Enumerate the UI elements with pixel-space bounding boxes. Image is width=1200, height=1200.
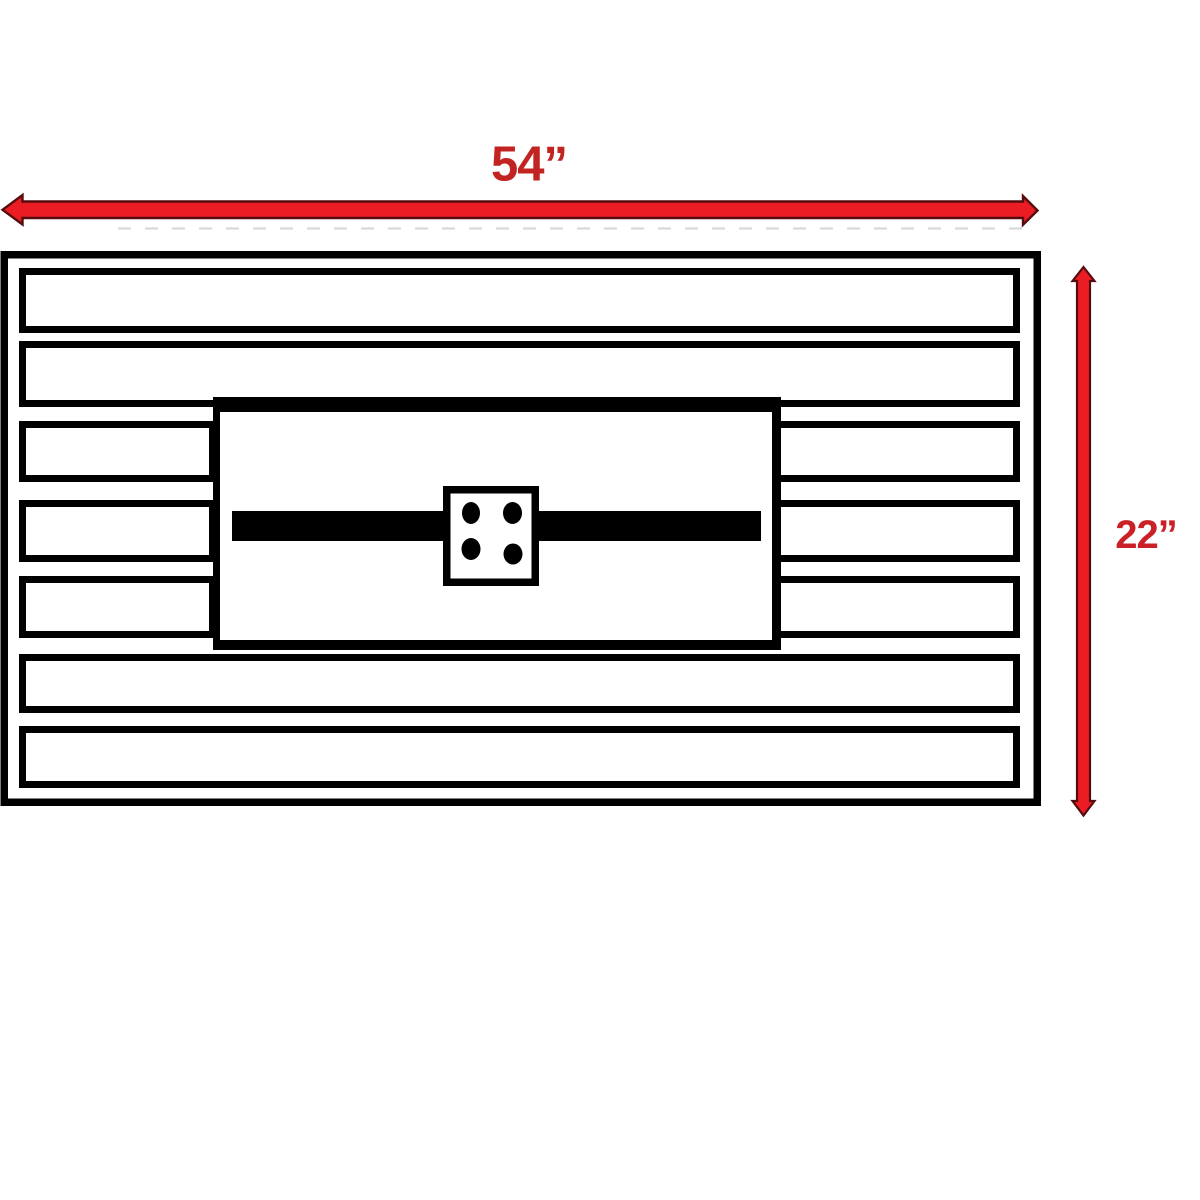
svg-text:22”: 22”	[1115, 513, 1177, 557]
svg-text:54”: 54”	[491, 138, 567, 192]
